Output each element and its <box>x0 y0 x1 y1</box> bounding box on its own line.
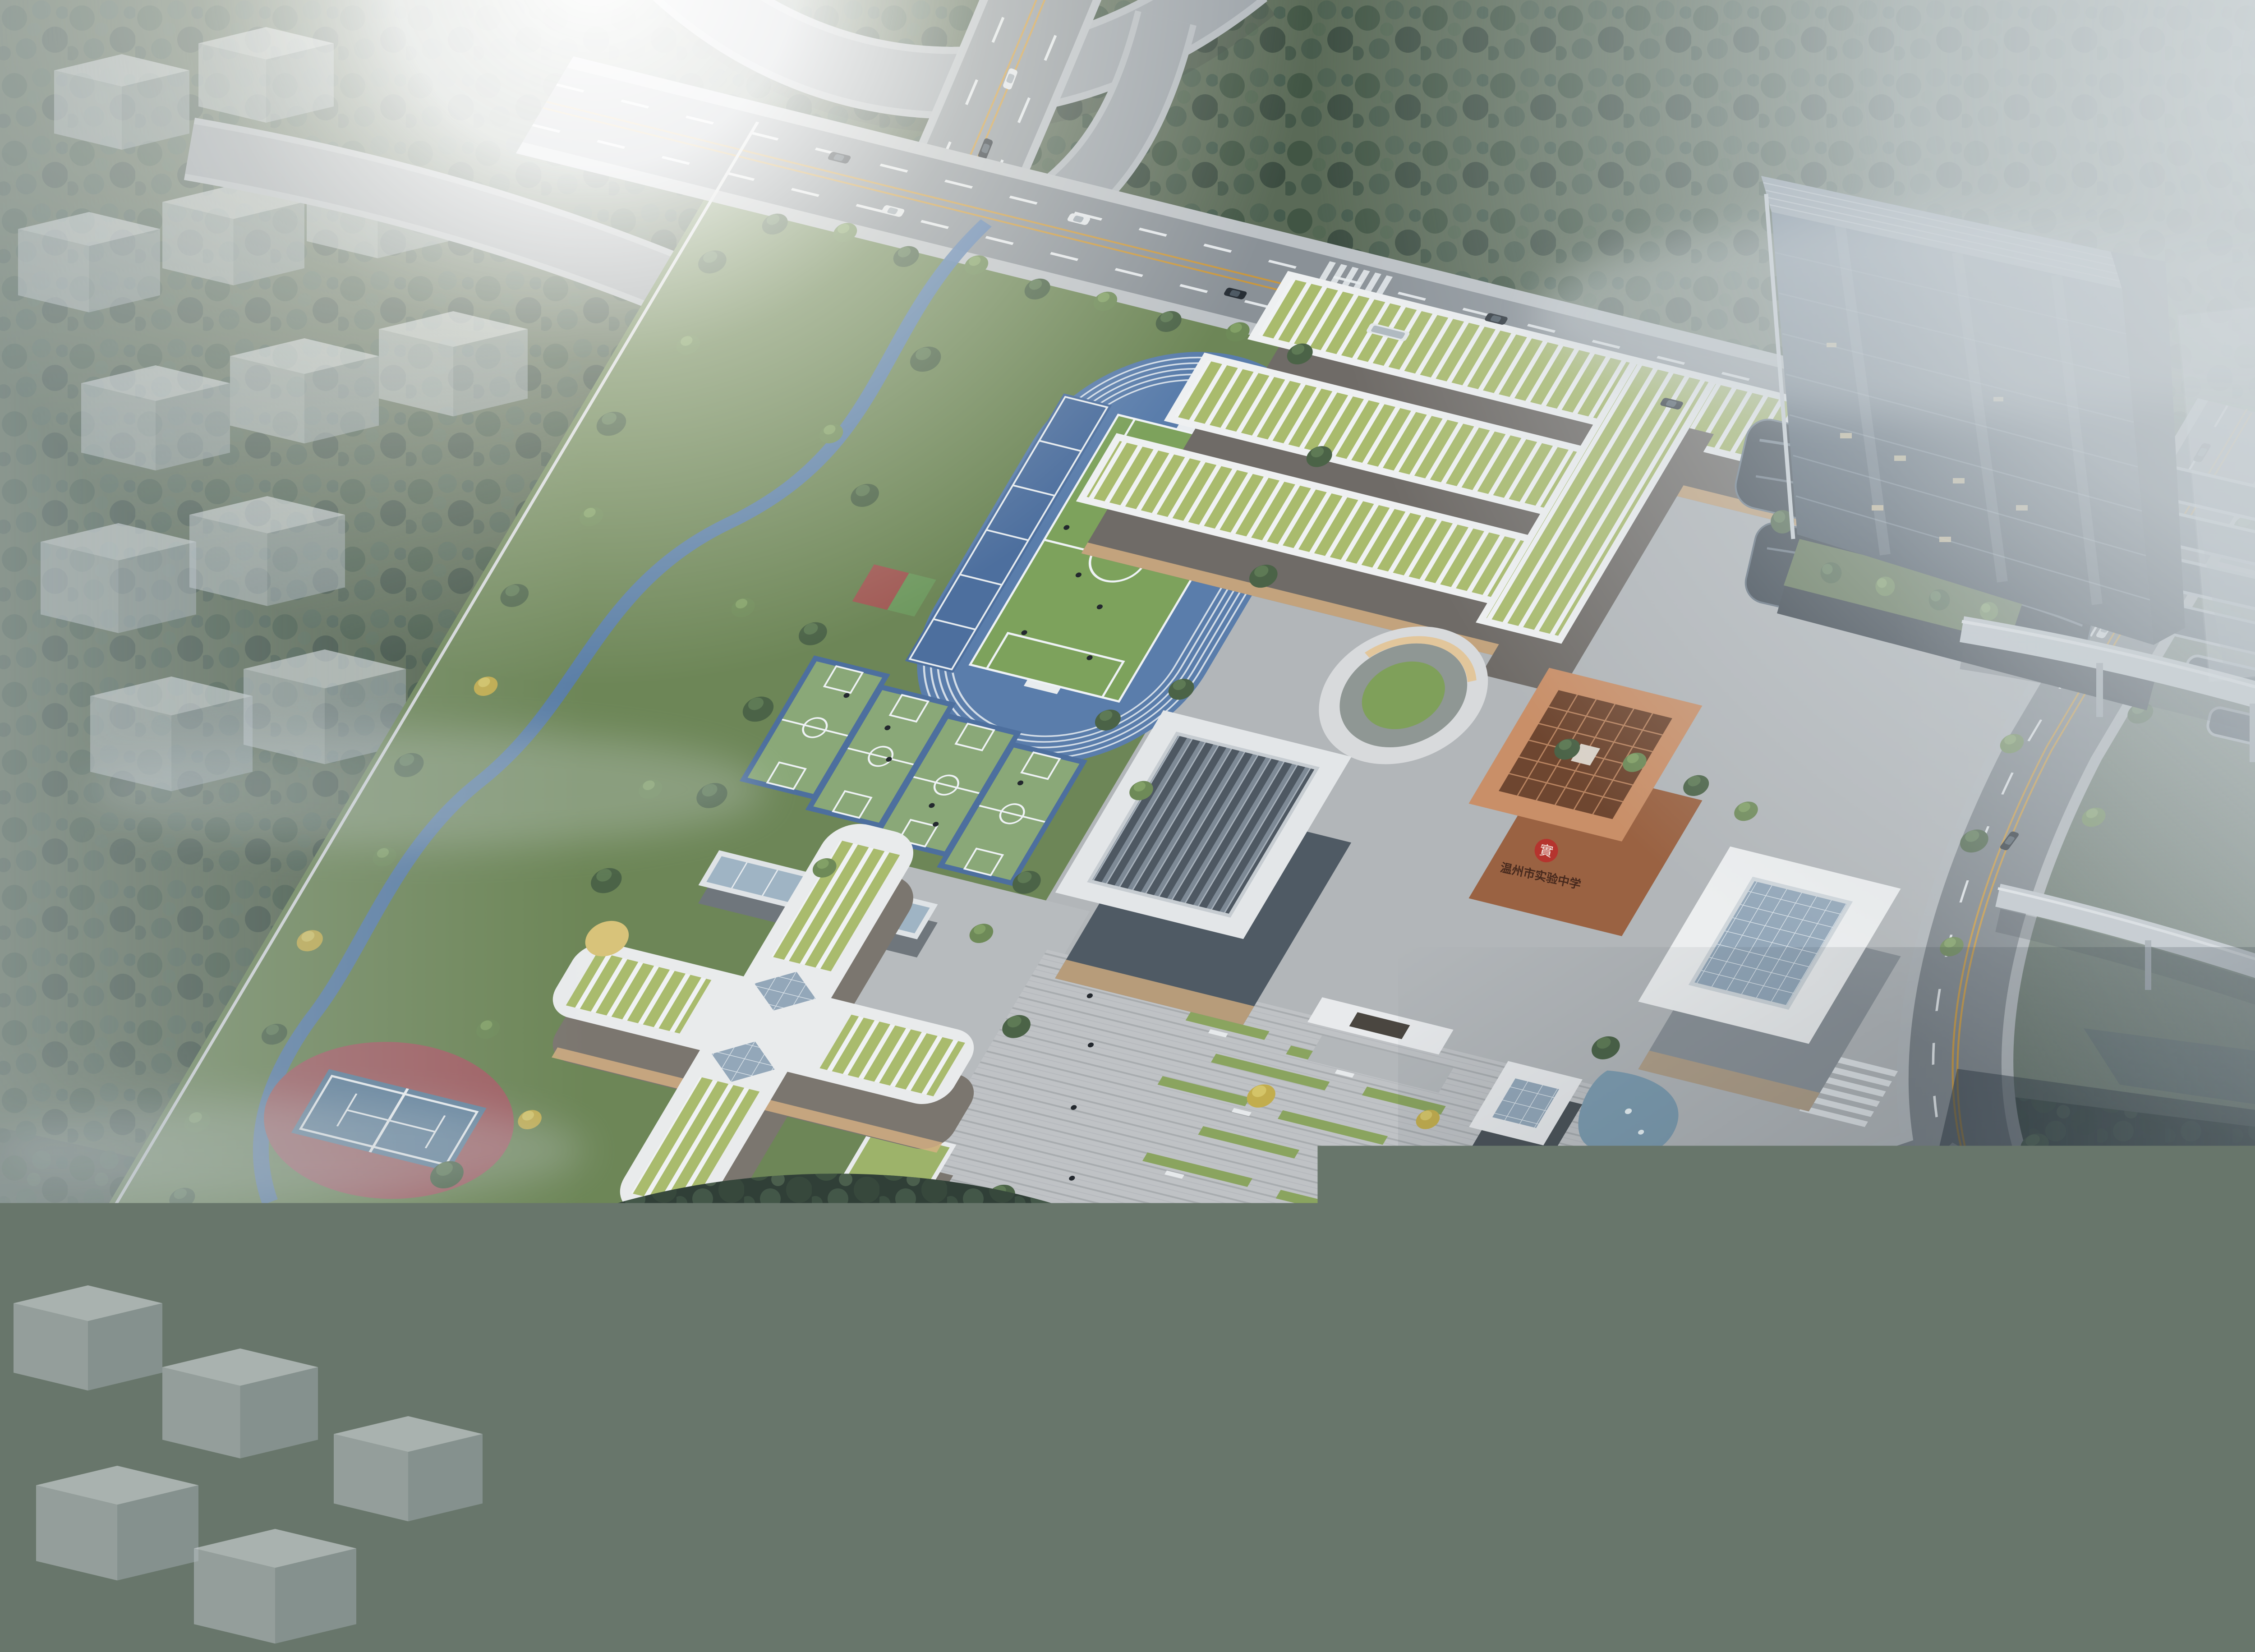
aerial-campus-rendering: 實 温州市实验中学 <box>0 0 2255 1652</box>
sun-glare <box>0 0 2255 1652</box>
atmosphere <box>0 0 2255 1652</box>
render-canvas: 實 温州市实验中学 <box>0 0 2255 1652</box>
